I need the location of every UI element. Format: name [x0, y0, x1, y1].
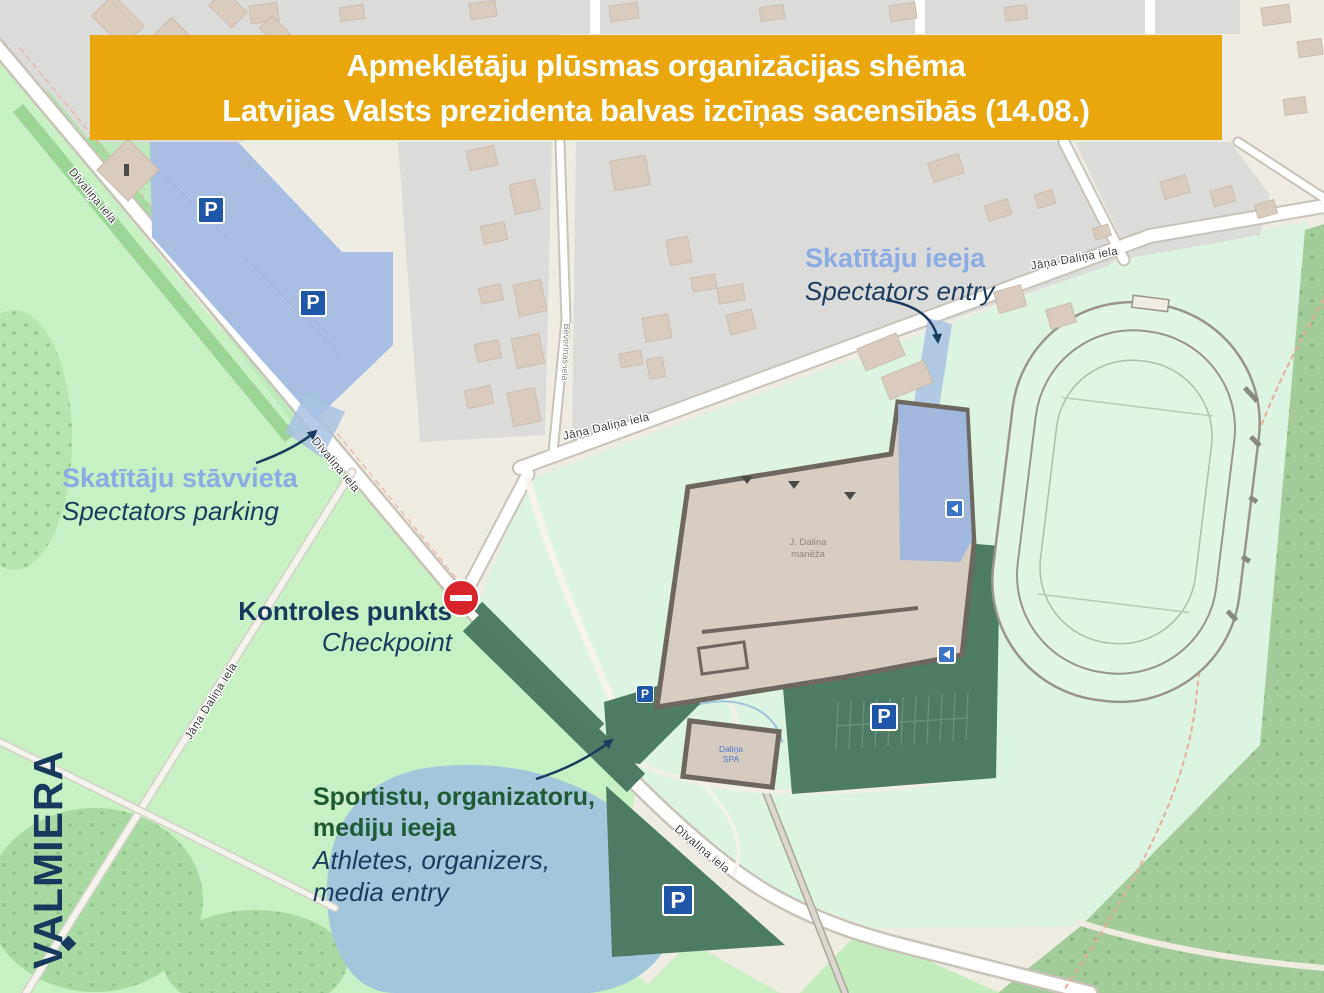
checkpoint-label: Kontroles punkts Checkpoint — [150, 596, 452, 658]
spa-label-line2: SPA — [723, 754, 740, 764]
spectators-entry-label: Skatītāju ieeja Spectators entry — [805, 242, 994, 307]
title-line1: Apmeklētāju plūsmas organizācijas shēma — [347, 43, 966, 88]
spectators-entry-lv: Skatītāju ieeja — [805, 242, 994, 275]
manege-label-line2: manēža — [791, 549, 826, 560]
spectators-parking-label: Skatītāju stāvvieta Spectators parking — [62, 462, 298, 527]
manege-label-line1: J. Daliņa — [790, 537, 828, 548]
title-line2: Latvijas Valsts prezidenta balvas izcīņa… — [222, 88, 1089, 133]
parking-icon: P — [662, 884, 694, 916]
spa-label-line1: Daliņa — [719, 744, 743, 754]
parking-icon: P — [299, 289, 327, 317]
street-label-beverinas: Beverīnas iela — [560, 323, 572, 380]
title-banner: Apmeklētāju plūsmas organizācijas shēma … — [90, 35, 1222, 140]
athletes-entry-en1: Athletes, organizers, — [313, 844, 643, 876]
spectators-hall-section — [898, 404, 972, 562]
city-wordmark: VALMIERA — [25, 753, 71, 969]
athletes-entry-en2: media entry — [313, 876, 643, 908]
parking-icon: P — [636, 685, 654, 703]
athletes-entry-lv1: Sportistu, organizatoru, — [313, 782, 643, 813]
checkpoint-lv: Kontroles punkts — [150, 596, 452, 626]
athletes-entry-label: Sportistu, organizatoru, mediju ieeja At… — [313, 782, 643, 908]
no-entry-icon — [442, 579, 480, 617]
spectators-parking-lv: Skatītāju stāvvieta — [62, 462, 298, 495]
checkpoint-en: Checkpoint — [150, 626, 452, 658]
spectators-parking-en: Spectators parking — [62, 495, 298, 527]
parking-icon: P — [870, 703, 898, 731]
athletes-entry-lv2: mediju ieeja — [313, 813, 643, 844]
spectators-entry-en: Spectators entry — [805, 275, 994, 307]
map-scheme: Dīvaliņa iela Dīvaliņa iela Dīvaliņa iel… — [0, 0, 1324, 993]
parking-icon: P — [197, 196, 225, 224]
